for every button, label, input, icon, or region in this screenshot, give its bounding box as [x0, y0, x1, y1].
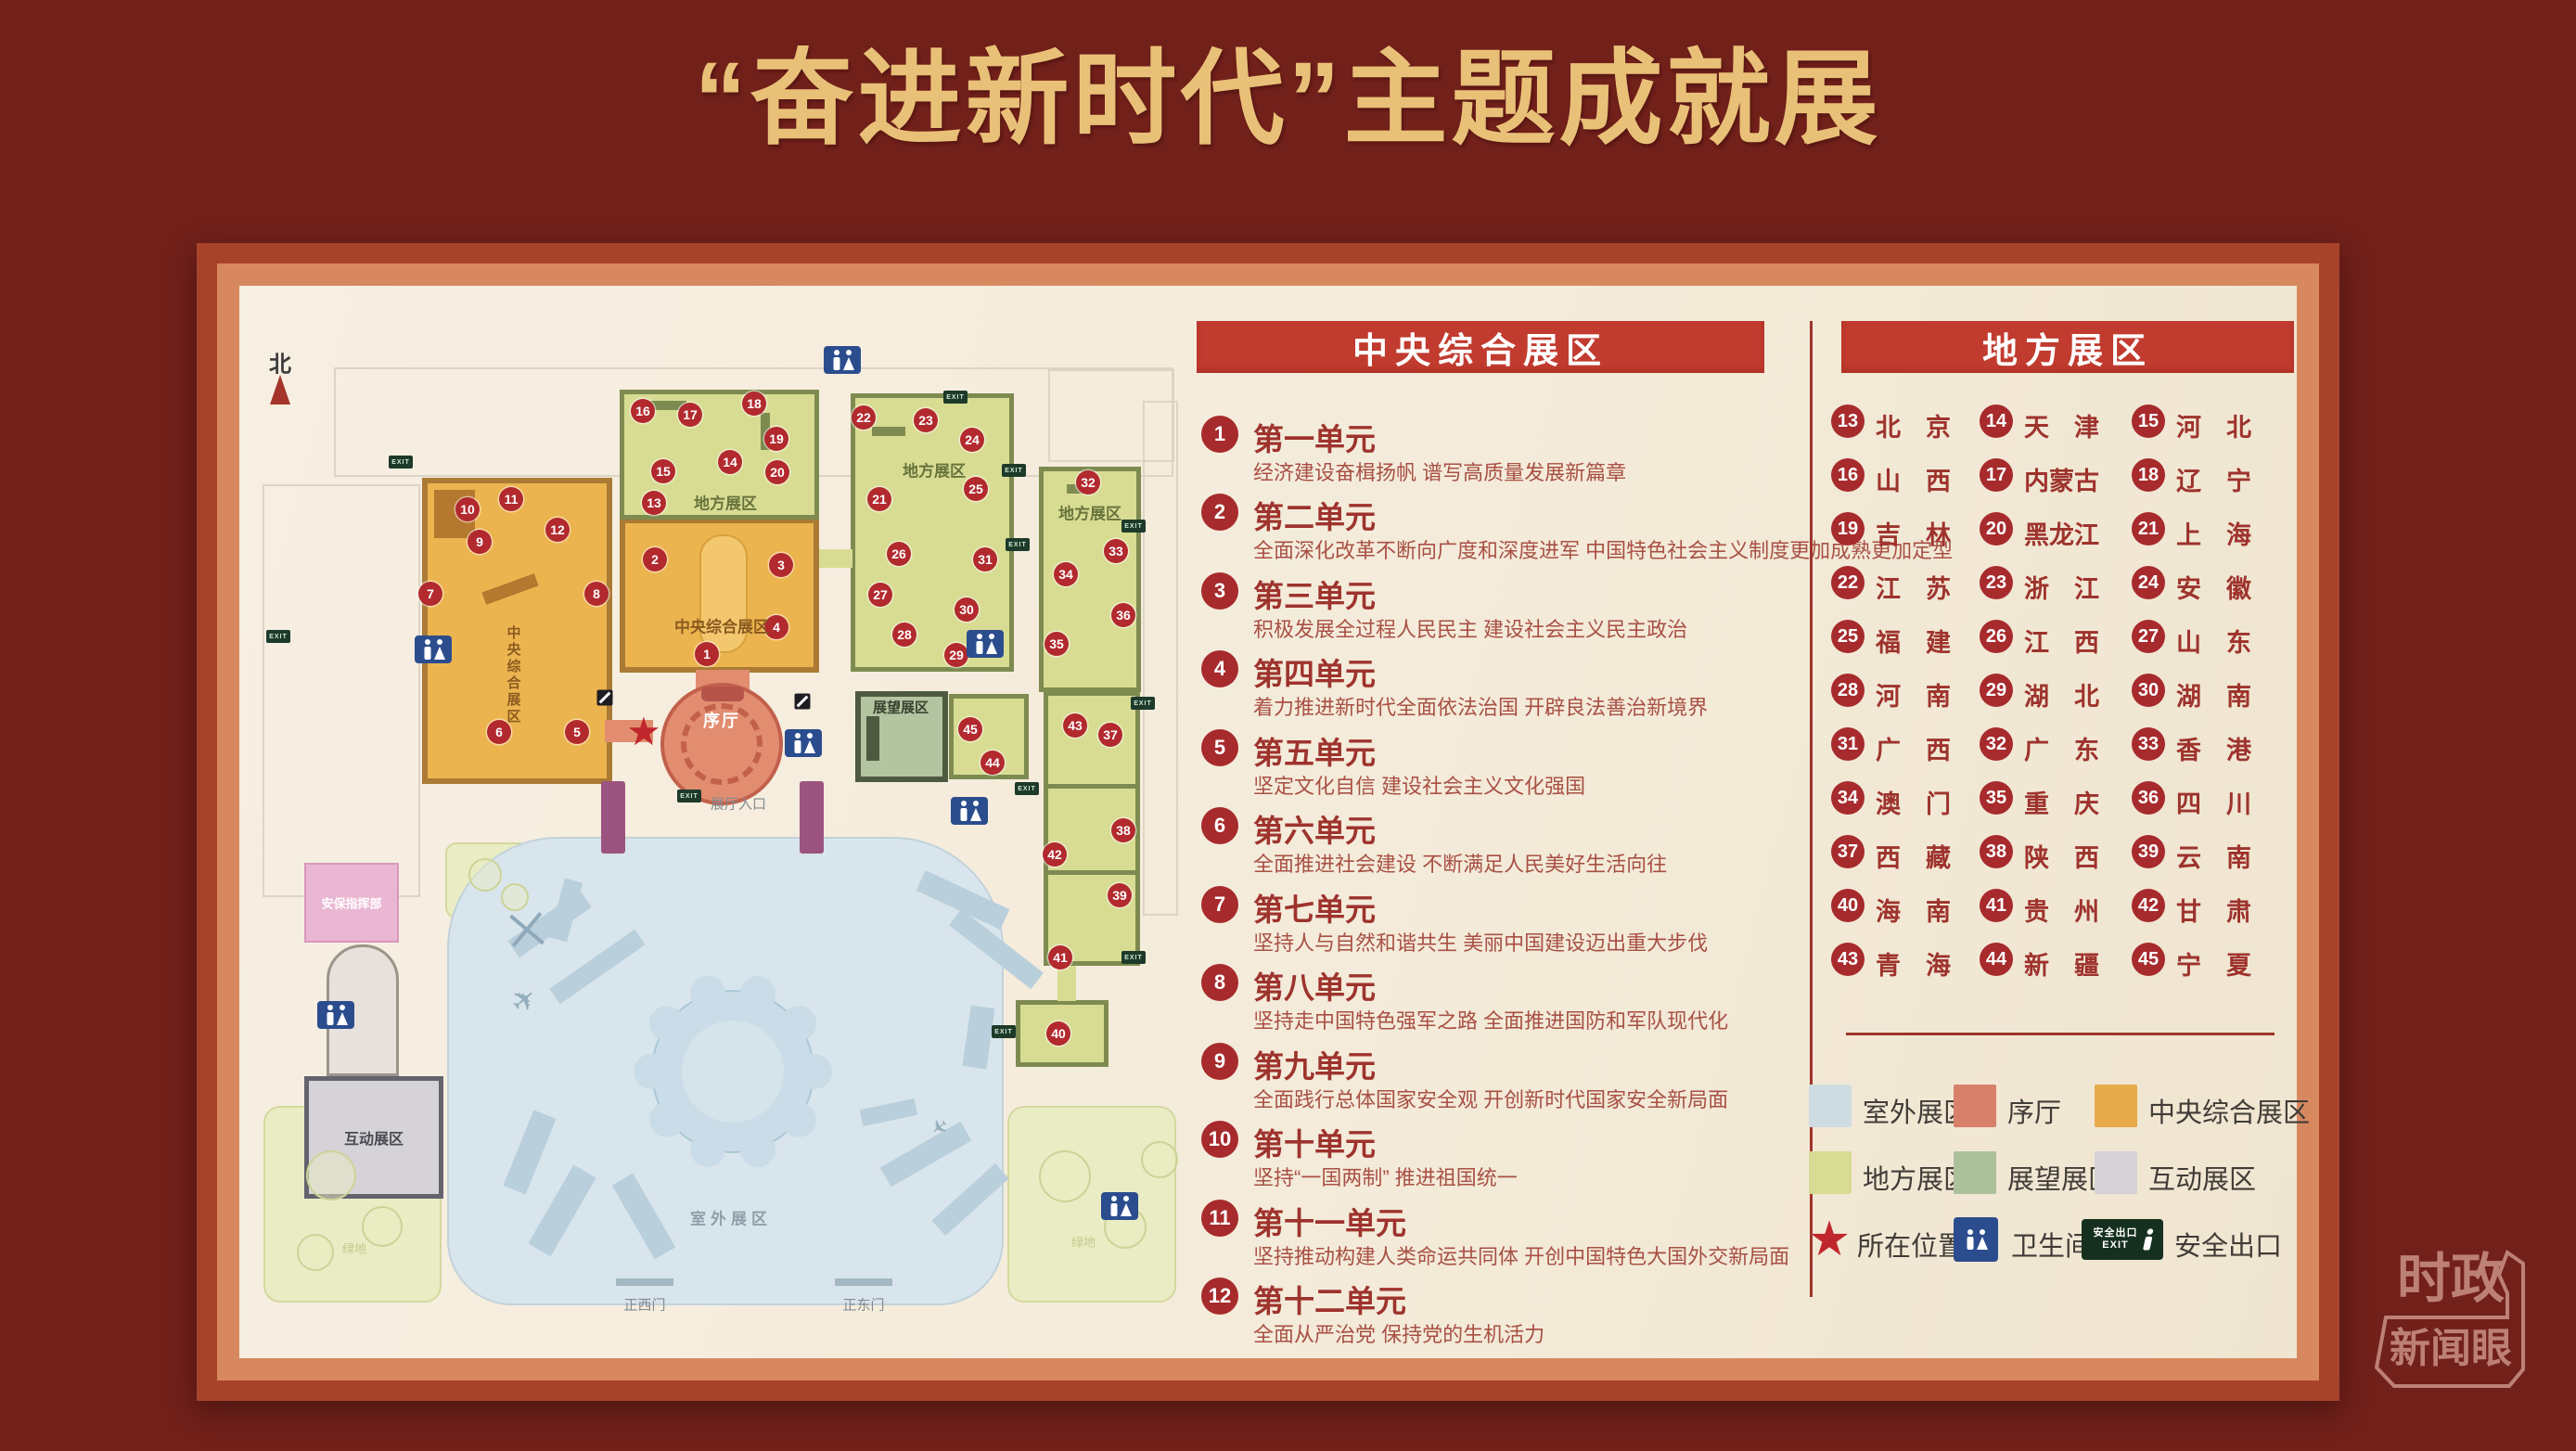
unit-number-badge: 12 — [1201, 1278, 1238, 1315]
province-number-badge: 39 — [2132, 835, 2165, 868]
exit-sign-line1: 安全出口 — [2094, 1227, 2138, 1239]
province-name: 广 西 — [1876, 730, 1951, 766]
province-name: 澳 门 — [1876, 784, 1951, 820]
province-number-badge: 37 — [1831, 835, 1865, 868]
province-number-badge: 34 — [1831, 781, 1865, 815]
province-number-badge: 24 — [2132, 566, 2165, 599]
province-name: 贵 州 — [2024, 892, 2099, 928]
province-name: 江 西 — [2024, 623, 2099, 659]
exhibition-board-photo: { "title": "“奋进新时代”主题成就展", "watermark": … — [0, 0, 2576, 1451]
unit-description: 坚持推动构建人类命运共同体 开创中国特色大国外交新局面 — [1253, 1240, 1789, 1270]
province-name: 吉 林 — [1876, 515, 1951, 551]
unit-number-badge: 3 — [1201, 572, 1238, 610]
province-name: 辽 宁 — [2176, 461, 2251, 497]
unit-number-badge: 9 — [1201, 1043, 1238, 1080]
legend-color-swatch — [2095, 1085, 2137, 1127]
unit-number-badge: 6 — [1201, 807, 1238, 844]
watermark-line1: 时政 — [2397, 1249, 2505, 1309]
province-number-badge: 30 — [2132, 674, 2165, 707]
unit-number-badge: 7 — [1201, 886, 1238, 923]
province-name: 广 东 — [2024, 730, 2099, 766]
male-figure-icon — [1966, 1229, 1974, 1251]
unit-title: 第三单元 — [1253, 571, 1376, 616]
province-number-badge: 18 — [2132, 458, 2165, 492]
legend-color-swatch — [2095, 1151, 2137, 1194]
unit-description: 全面从严治党 保持党的生机活力 — [1253, 1318, 1544, 1348]
province-number-badge: 42 — [2132, 889, 2165, 922]
province-name: 湖 北 — [2024, 676, 2099, 713]
province-number-badge: 35 — [1980, 781, 2013, 815]
unit-description: 着力推进新时代全面依法治国 开辟良法善治新境界 — [1253, 691, 1708, 721]
page-title: “奋进新时代”主题成就展 — [0, 15, 2576, 165]
province-number-badge: 19 — [1831, 512, 1865, 546]
province-name: 安 徽 — [2176, 569, 2251, 605]
province-number-badge: 22 — [1831, 566, 1865, 599]
province-name: 河 北 — [2176, 407, 2251, 443]
legend-star-icon: ★ — [1808, 1215, 1852, 1264]
province-number-badge: 27 — [2132, 620, 2165, 653]
unit-number-badge: 10 — [1201, 1121, 1238, 1158]
unit-title: 第八单元 — [1253, 963, 1376, 1008]
unit-title: 第九单元 — [1253, 1042, 1376, 1086]
unit-description: 坚持走中国特色强军之路 全面推进国防和军队现代化 — [1253, 1005, 1728, 1034]
unit-description: 经济建设奋楫扬帆 谱写高质量发展新篇章 — [1253, 456, 1626, 486]
province-name: 新 疆 — [2024, 945, 2099, 982]
central-zone-header: 中央综合展区 — [1197, 321, 1764, 373]
exit-sign-text: 安全出口EXIT — [2094, 1227, 2138, 1252]
province-name: 宁 夏 — [2176, 945, 2251, 982]
unit-title: 第十一单元 — [1253, 1199, 1406, 1243]
unit-title: 第七单元 — [1253, 885, 1376, 930]
province-name: 陕 西 — [2024, 838, 2099, 874]
legend-area-label: 序厅 — [2007, 1091, 2061, 1130]
unit-title: 第十单元 — [1253, 1120, 1376, 1164]
province-name: 重 庆 — [2024, 784, 2099, 820]
province-number-badge: 32 — [1980, 727, 2013, 761]
province-name: 江 苏 — [1876, 569, 1951, 605]
unit-number-badge: 1 — [1201, 416, 1238, 453]
legend-color-swatch — [1954, 1151, 1996, 1194]
province-name: 山 东 — [2176, 623, 2251, 659]
province-name: 天 津 — [2024, 407, 2099, 443]
exit-sign-line2: EXIT — [2094, 1239, 2138, 1252]
legend-color-swatch — [1809, 1151, 1852, 1194]
unit-number-badge: 8 — [1201, 964, 1238, 1001]
unit-description: 坚持人与自然和谐共生 美丽中国建设迈出重大步伐 — [1253, 927, 1708, 957]
province-number-badge: 25 — [1831, 620, 1865, 653]
province-number-badge: 15 — [2132, 404, 2165, 438]
province-name: 山 西 — [1876, 461, 1951, 497]
unit-title: 第一单元 — [1253, 415, 1376, 459]
province-name: 黑龙江 — [2024, 515, 2099, 551]
province-number-badge: 26 — [1980, 620, 2013, 653]
province-number-badge: 41 — [1980, 889, 2013, 922]
province-name: 西 藏 — [1876, 838, 1951, 874]
province-number-badge: 28 — [1831, 674, 1865, 707]
unit-number-badge: 4 — [1201, 650, 1238, 687]
province-name: 青 海 — [1876, 945, 1951, 982]
unit-description: 全面推进社会建设 不断满足人民美好生活向往 — [1253, 848, 1667, 878]
province-name: 甘 肃 — [2176, 892, 2251, 928]
province-number-badge: 13 — [1831, 404, 1865, 438]
province-number-badge: 44 — [1980, 943, 2013, 976]
province-name: 北 京 — [1876, 407, 1951, 443]
province-number-badge: 43 — [1831, 943, 1865, 976]
province-name: 海 南 — [1876, 892, 1951, 928]
province-number-badge: 33 — [2132, 727, 2165, 761]
province-number-badge: 16 — [1831, 458, 1865, 492]
unit-title: 第五单元 — [1253, 728, 1376, 773]
province-number-badge: 29 — [1980, 674, 2013, 707]
unit-number-badge: 5 — [1201, 729, 1238, 766]
unit-description: 积极发展全过程人民民主 建设社会主义民主政治 — [1253, 613, 1687, 643]
province-name: 内蒙古 — [2024, 461, 2099, 497]
province-number-badge: 17 — [1980, 458, 2013, 492]
legend-area-label: 中央综合展区 — [2148, 1091, 2310, 1130]
legend-area-label: 互动展区 — [2148, 1158, 2256, 1197]
legend-color-swatch — [1809, 1085, 1852, 1127]
province-number-badge: 36 — [2132, 781, 2165, 815]
unit-title: 第六单元 — [1253, 806, 1376, 851]
province-number-badge: 14 — [1980, 404, 2013, 438]
unit-description: 坚定文化自信 建设社会主义文化强国 — [1253, 770, 1585, 800]
unit-description: 全面践行总体国家安全观 开创新时代国家安全新局面 — [1253, 1084, 1728, 1113]
local-zone-header: 地方展区 — [1841, 321, 2294, 373]
province-number-badge: 40 — [1831, 889, 1865, 922]
legend-color-swatch — [1954, 1085, 1996, 1127]
province-number-badge: 21 — [2132, 512, 2165, 546]
province-number-badge: 45 — [2132, 943, 2165, 976]
unit-title: 第十二单元 — [1253, 1277, 1406, 1321]
legend-marker-label: 卫生间 — [2011, 1225, 2092, 1264]
legend-exit-icon: 安全出口EXIT — [2082, 1219, 2163, 1260]
province-name: 云 南 — [2176, 838, 2251, 874]
watermark-line2: 新闻眼 — [2390, 1326, 2512, 1371]
province-name: 香 港 — [2176, 730, 2251, 766]
province-name: 上 海 — [2176, 515, 2251, 551]
unit-title: 第二单元 — [1253, 493, 1376, 537]
unit-title: 第四单元 — [1253, 649, 1376, 694]
province-name: 湖 南 — [2176, 676, 2251, 713]
legend-restroom-icon — [1954, 1217, 1998, 1262]
province-name: 河 南 — [1876, 676, 1951, 713]
province-name: 福 建 — [1876, 623, 1951, 659]
unit-number-badge: 11 — [1201, 1200, 1238, 1237]
legend-marker-label: 安全出口 — [2174, 1225, 2282, 1264]
tv-watermark: 时政 新闻眼 — [2355, 1236, 2550, 1403]
legend-marker-label: 所在位置 — [1857, 1225, 1965, 1264]
female-figure-icon — [1978, 1229, 1986, 1251]
province-number-badge: 31 — [1831, 727, 1865, 761]
unit-number-badge: 2 — [1201, 494, 1238, 531]
province-number-badge: 38 — [1980, 835, 2013, 868]
province-number-badge: 23 — [1980, 566, 2013, 599]
province-name: 四 川 — [2176, 784, 2251, 820]
province-name: 浙 江 — [2024, 569, 2099, 605]
running-man-icon — [2141, 1228, 2155, 1251]
unit-description: 坚持“一国两制” 推进祖国统一 — [1253, 1162, 1518, 1191]
legend-divider — [1846, 1033, 2275, 1035]
province-number-badge: 20 — [1980, 512, 2013, 546]
